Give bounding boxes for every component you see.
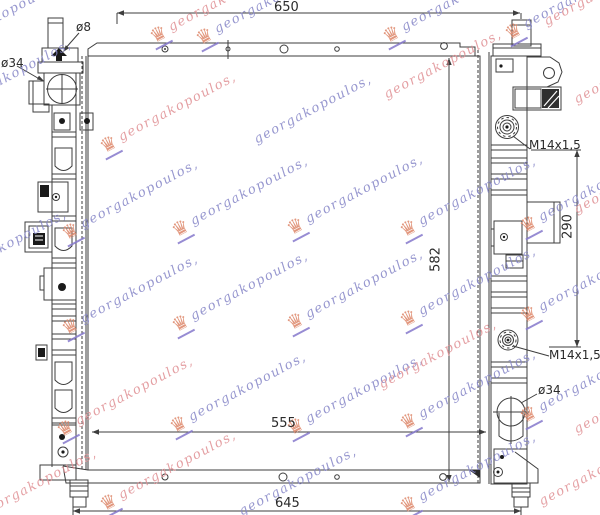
callout-top-inlet: ø34 — [1, 57, 24, 69]
left-tank — [25, 18, 93, 507]
bottom-outlet-port — [493, 394, 537, 444]
lower-thread-port — [498, 330, 549, 356]
dimension-arrowheads — [37, 10, 580, 514]
upper-thread-port — [496, 116, 531, 150]
radiator-line-drawing — [0, 0, 600, 515]
dim-top-width: 650 — [274, 1, 299, 14]
top-inlet-port — [44, 73, 80, 105]
callout-small-port: ø8 — [76, 21, 91, 33]
dim-port-spacing: 290 — [562, 212, 575, 242]
right-tank — [489, 20, 562, 507]
callout-upper-thread-port: M14x1,5 — [529, 139, 581, 151]
callout-lower-thread-port: M14x1,5 — [549, 349, 600, 361]
bottom-header-band — [63, 466, 480, 483]
dim-core-width: 555 — [271, 417, 296, 430]
callout-bottom-outlet: ø34 — [538, 384, 561, 396]
radiator-technical-drawing: georgakopoulos,♛georgakopoulos,♛georgako… — [0, 0, 600, 515]
dim-bottom-width: 645 — [275, 497, 300, 510]
dim-core-height: 582 — [430, 245, 443, 275]
dimension-lines — [17, 13, 581, 515]
